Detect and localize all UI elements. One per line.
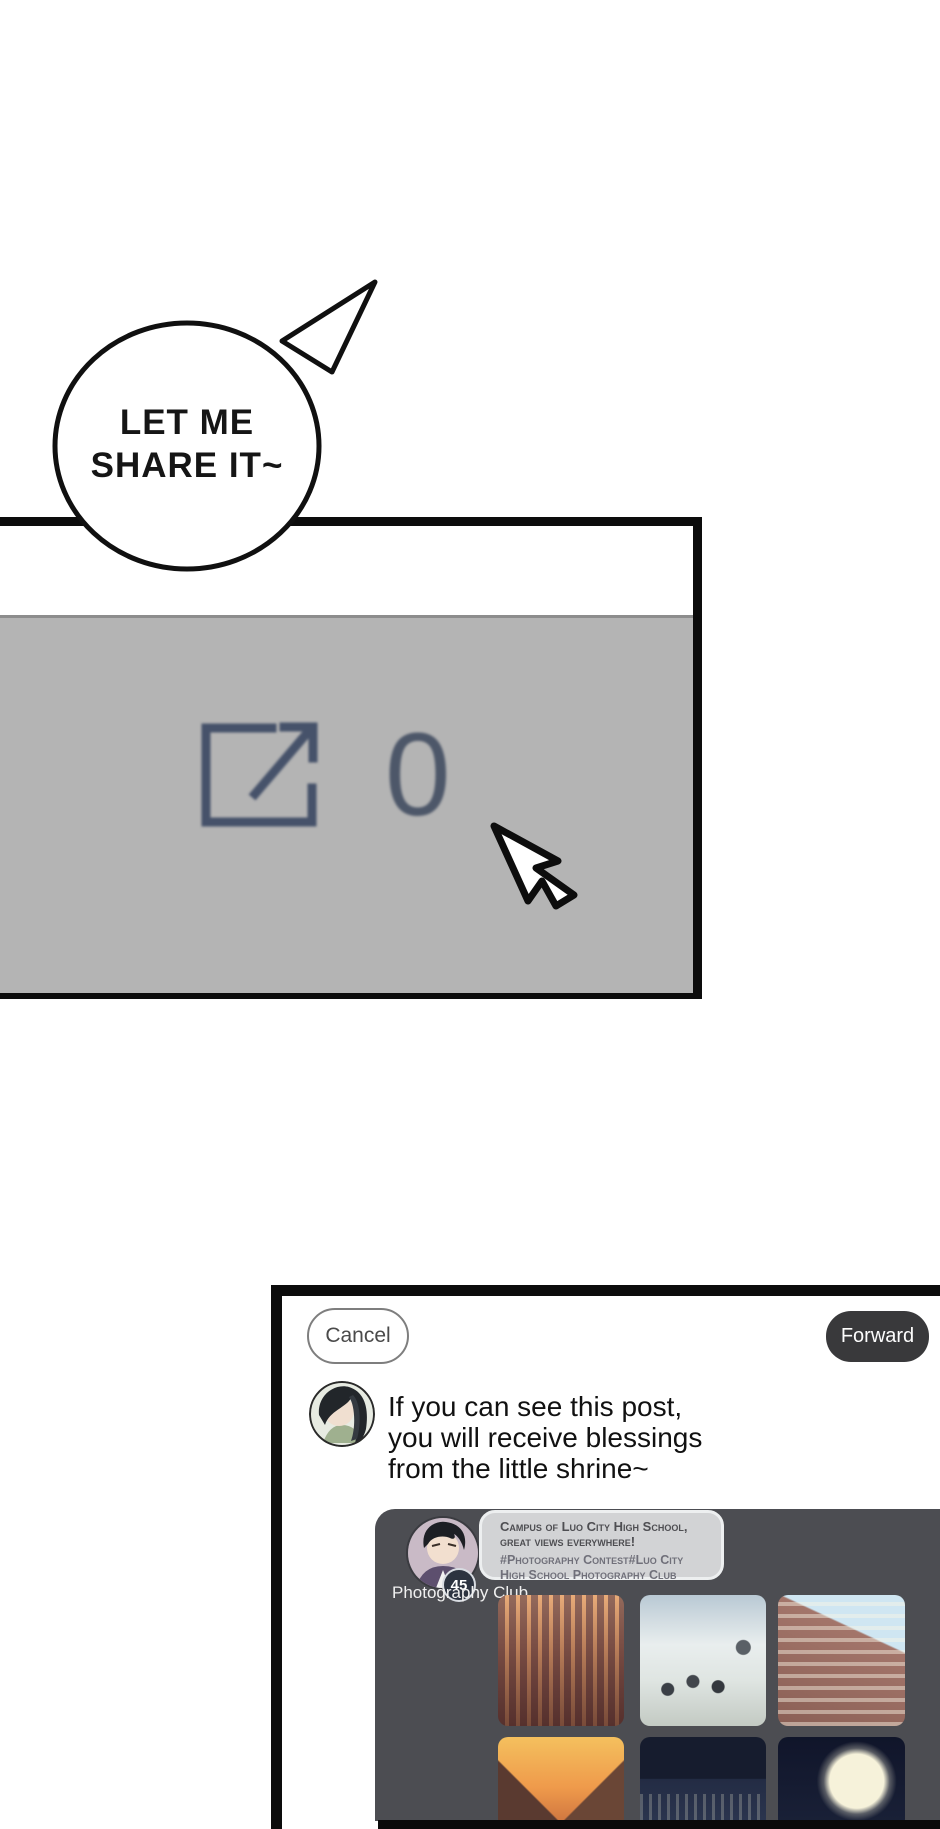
mouse-cursor-icon[interactable] (480, 815, 590, 920)
speech-bubble (30, 225, 400, 575)
bottom-divider-bar (378, 1820, 940, 1829)
share-count: 0 (385, 716, 465, 834)
caption-line-1: Campus of Luo City High School, (500, 1519, 713, 1534)
forward-button[interactable]: Forward (826, 1311, 929, 1362)
post-caption-bubble: Campus of Luo City High School, great vi… (479, 1510, 724, 1580)
cancel-button[interactable]: Cancel (307, 1308, 409, 1364)
phone-panel-border-left (271, 1285, 282, 1829)
hashtag-line-1[interactable]: #Photography Contest#Luo City (500, 1553, 713, 1568)
sender-avatar[interactable] (309, 1381, 375, 1447)
photo-thumbnail-full-moon[interactable] (778, 1737, 905, 1829)
photo-thumbnail-classroom[interactable] (640, 1595, 766, 1726)
blurred-app-toolbar-panel (0, 615, 693, 993)
panel-border-right (693, 517, 702, 999)
caption-line-2: great views everywhere! (500, 1534, 713, 1549)
message-line-2: you will receive blessings (388, 1422, 808, 1453)
forward-button-label: Forward (841, 1325, 914, 1348)
photo-thumbnail-sunset-temple[interactable] (498, 1595, 624, 1726)
message-line-3: from the little shrine~ (388, 1453, 808, 1484)
photo-thumbnail-night-building[interactable] (640, 1737, 766, 1829)
comic-page: 0 LET ME SHARE IT~ Cancel Forward If you… (0, 0, 940, 1829)
photo-thumbnail-school-building[interactable] (778, 1595, 905, 1726)
forward-message-text[interactable]: If you can see this post, you will recei… (388, 1391, 808, 1484)
sender-avatar-portrait (309, 1381, 375, 1447)
speech-bubble-line-2: SHARE IT~ (57, 446, 317, 486)
share-forward-icon[interactable] (192, 714, 327, 839)
phone-panel-border-top (271, 1285, 940, 1296)
message-line-1: If you can see this post, (388, 1391, 808, 1422)
hashtag-line-2[interactable]: High School Photography Club (500, 1568, 713, 1583)
cancel-button-label: Cancel (325, 1324, 390, 1348)
speech-bubble-line-1: LET ME (57, 403, 317, 443)
photo-thumbnail-sunset-sky[interactable] (498, 1737, 624, 1829)
